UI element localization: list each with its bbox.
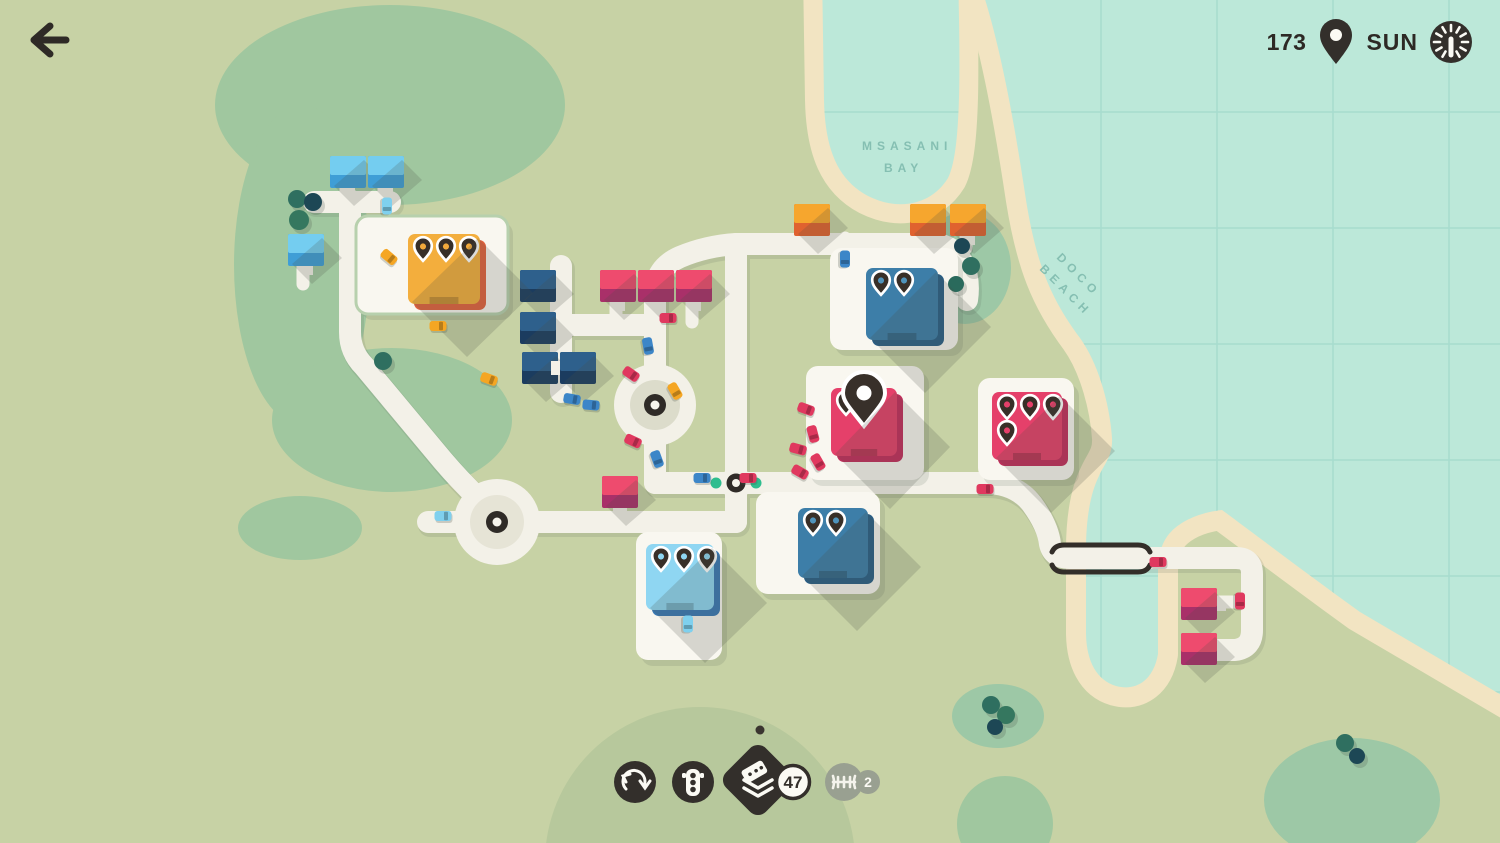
bay-label-line2: BAY	[884, 161, 923, 175]
car	[694, 473, 712, 485]
car	[1150, 557, 1168, 569]
car	[435, 511, 453, 523]
destination-pin-icon	[1316, 18, 1356, 66]
roundabout-tool-button[interactable]	[614, 761, 656, 803]
roundabout-left[interactable]	[454, 479, 540, 565]
day-label: SUN	[1366, 29, 1418, 56]
car	[740, 473, 758, 485]
back-arrow-icon	[18, 14, 74, 66]
car	[582, 399, 601, 413]
car	[977, 484, 995, 496]
road-tiles-button[interactable]: 47	[718, 740, 809, 819]
car	[430, 321, 448, 333]
week-clock-icon[interactable]	[1428, 19, 1474, 65]
toolbar: 47 2	[0, 725, 1500, 835]
car	[838, 251, 850, 269]
car	[1233, 593, 1245, 611]
car	[380, 198, 392, 216]
car	[681, 616, 693, 634]
page-indicator-dot	[756, 726, 765, 735]
city-map[interactable]: MSASANI BAY DOCO BEACH	[0, 0, 1500, 843]
car	[660, 313, 678, 325]
game-viewport: MSASANI BAY DOCO BEACH	[0, 0, 1500, 843]
bridge-tool-button[interactable]: 2	[825, 763, 880, 801]
traffic-light-tool-button[interactable]	[672, 761, 714, 803]
bay-label-line1: MSASANI	[862, 139, 952, 153]
destinations-count: 173	[1267, 29, 1307, 56]
back-button[interactable]	[18, 14, 74, 66]
road-tiles-count: 47	[784, 773, 803, 792]
bridges-count: 2	[864, 774, 872, 790]
traffic-green-dot	[711, 478, 722, 489]
hud-top-right: 173 SUN	[1267, 18, 1474, 66]
